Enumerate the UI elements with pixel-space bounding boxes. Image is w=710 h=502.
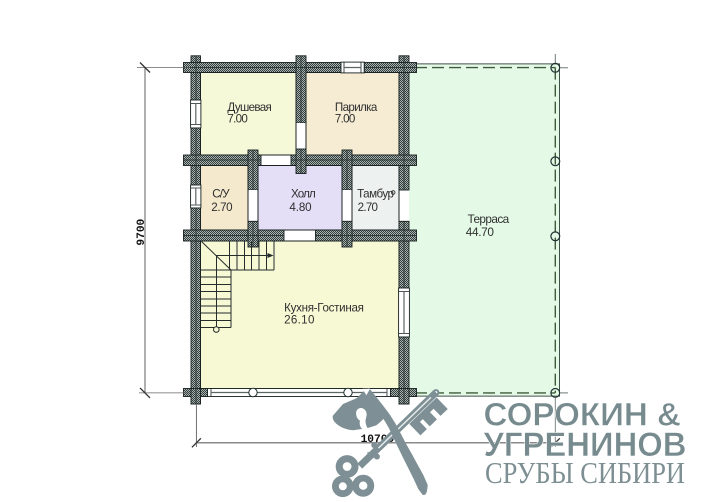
svg-text:26.10: 26.10 [284,313,314,326]
svg-text:С/У: С/У [212,188,230,201]
svg-text:Тамбур: Тамбур [357,188,394,201]
svg-text:2.70: 2.70 [358,201,378,214]
svg-text:4.80: 4.80 [289,201,311,214]
svg-text:7.00: 7.00 [335,112,355,125]
svg-text:44.70: 44.70 [466,225,495,239]
svg-text:СРУБЫ СИБИРИ: СРУБЫ СИБИРИ [485,456,685,490]
svg-text:7.00: 7.00 [227,112,247,125]
svg-text:Терраса: Терраса [468,212,510,226]
svg-text:Холл: Холл [291,188,316,201]
svg-text:9700: 9700 [136,218,148,245]
svg-text:2.70: 2.70 [211,201,232,214]
